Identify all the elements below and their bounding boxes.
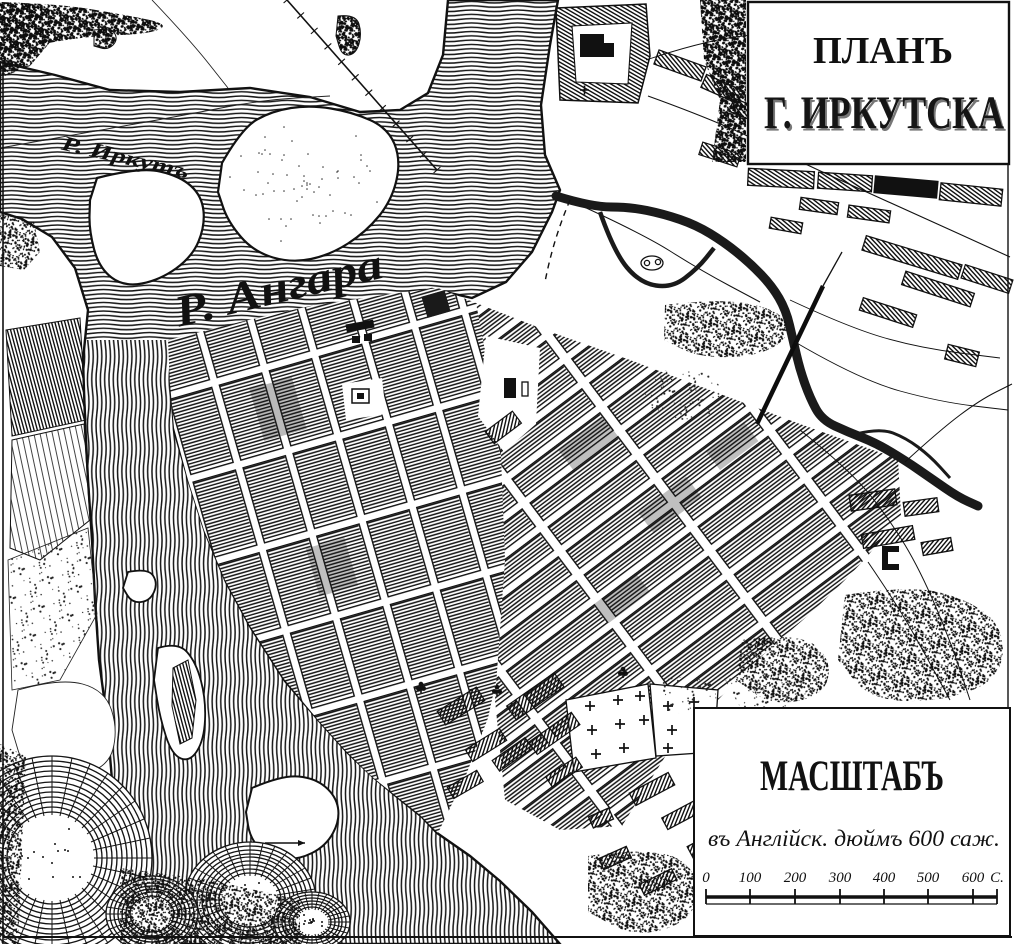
svg-text:200: 200 [784, 870, 807, 886]
svg-text:100: 100 [739, 870, 762, 886]
svg-text:въ Англійск. дюймъ 600 саж.: въ Англійск. дюймъ 600 саж. [708, 826, 1000, 851]
svg-text:0: 0 [702, 870, 710, 886]
svg-text:С.: С. [990, 870, 1004, 886]
svg-text:Г. ИРКУТСКА: Г. ИРКУТСКА [764, 87, 1004, 139]
svg-text:500: 500 [917, 870, 940, 886]
svg-text:300: 300 [828, 870, 852, 886]
svg-text:МАСШТАБЪ: МАСШТАБЪ [760, 753, 944, 800]
svg-text:400: 400 [873, 870, 896, 886]
svg-text:ПЛАНЪ: ПЛАНЪ [813, 30, 953, 72]
svg-text:600: 600 [962, 870, 985, 886]
